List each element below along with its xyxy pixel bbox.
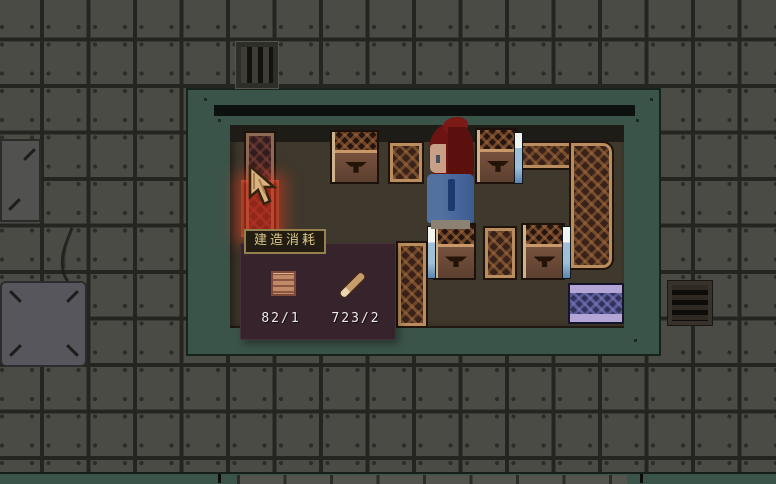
- dresser-drawer: [438, 247, 474, 278]
- rattan-wall[interactable]: [520, 143, 577, 168]
- drawer-handle-icon: [345, 162, 367, 173]
- sliding-door[interactable]: [515, 133, 522, 183]
- player-character[interactable]: [426, 117, 476, 229]
- rattan-wall[interactable]: [571, 143, 612, 268]
- sliding-door[interactable]: [428, 227, 435, 278]
- cost-value: 82/1: [248, 311, 314, 326]
- character-eye: [436, 155, 440, 163]
- roof-shadow-slit: [214, 105, 635, 116]
- lower-building-edge: [0, 472, 776, 484]
- wood-plank-icon: [271, 271, 296, 296]
- dresser[interactable]: [332, 132, 377, 182]
- bed-footer: [570, 314, 622, 322]
- tooltip-title: 建造消耗: [244, 229, 326, 254]
- game-viewport: 82/1 723/2 建造消耗: [0, 0, 776, 484]
- dresser-drawer: [526, 247, 563, 278]
- scratched-floor-plate: [0, 281, 87, 367]
- scratched-floor-plate: [0, 139, 41, 222]
- bed-pillow: [570, 285, 622, 293]
- edge-mark: [218, 474, 221, 483]
- sliding-door[interactable]: [563, 227, 570, 278]
- dresser[interactable]: [435, 225, 474, 278]
- rattan-wall[interactable]: [398, 243, 426, 326]
- vent-vertical-icon[interactable]: [236, 42, 278, 88]
- drawer-handle-icon: [534, 256, 556, 267]
- wall-rivet: [636, 119, 639, 122]
- dresser[interactable]: [477, 130, 516, 182]
- character-legs: [431, 220, 470, 229]
- wall-rivet: [634, 339, 637, 342]
- stick-icon: [338, 271, 367, 300]
- dresser-top: [335, 132, 377, 153]
- lower-building-tiles: [237, 475, 627, 484]
- build-cost-tooltip: 82/1 723/2: [240, 243, 396, 340]
- bed[interactable]: [570, 285, 622, 322]
- bed-blanket: [570, 293, 622, 314]
- pointer-arrow-icon: [247, 165, 281, 209]
- dresser-top: [480, 130, 516, 152]
- drawer-handle-icon: [445, 256, 467, 267]
- wall-rivet: [650, 98, 653, 101]
- character-tie: [448, 179, 455, 211]
- rattan-wall[interactable]: [390, 143, 422, 182]
- wall-rivet: [218, 119, 221, 122]
- dresser-drawer: [335, 153, 377, 182]
- wall-rivet: [204, 98, 207, 101]
- cost-value: 723/2: [322, 311, 390, 326]
- dresser-drawer: [480, 152, 516, 182]
- dresser[interactable]: [523, 225, 563, 278]
- smoke-wisp: [52, 226, 78, 282]
- rattan-wall[interactable]: [485, 228, 515, 278]
- edge-mark: [640, 474, 643, 483]
- drawer-handle-icon: [487, 161, 509, 172]
- dresser-top: [526, 225, 563, 247]
- vent-horizontal-icon[interactable]: [668, 281, 712, 325]
